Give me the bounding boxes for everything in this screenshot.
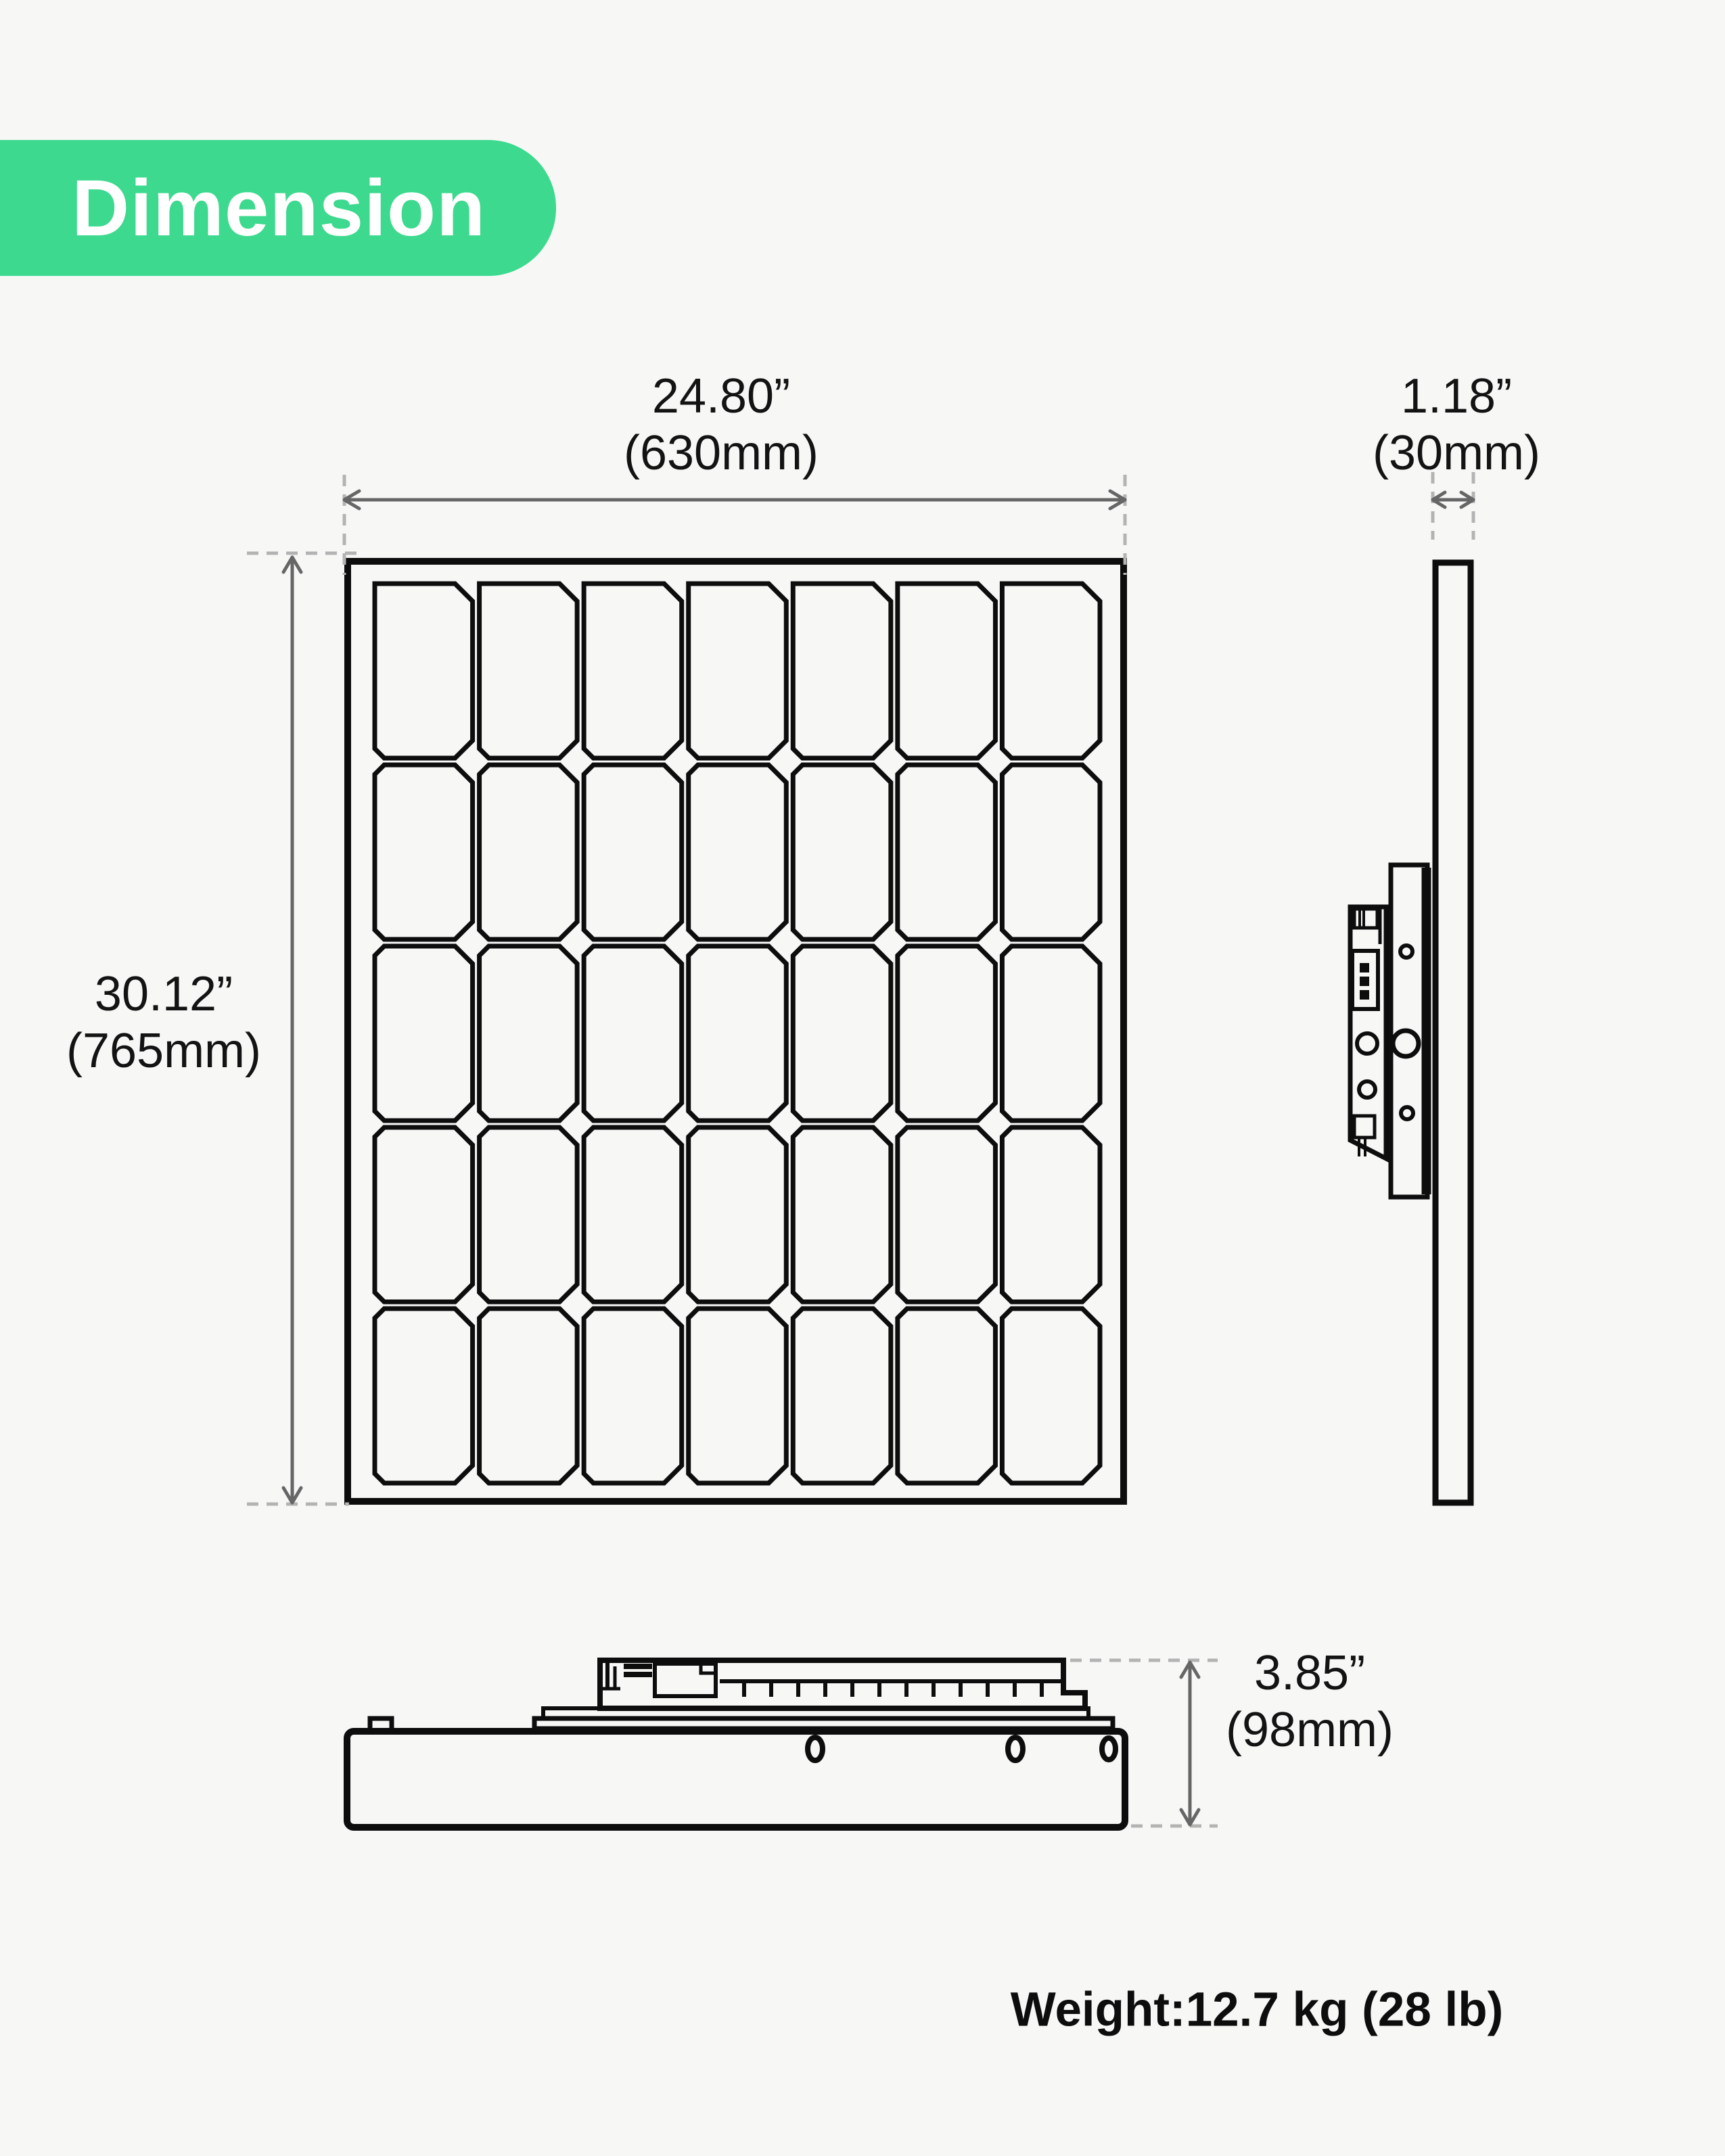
thickness-dimension-inches: 1.18” — [1401, 369, 1512, 424]
junction-box-profile — [600, 1660, 1085, 1708]
width-dimension-inches: 24.80” — [652, 369, 790, 424]
cable-gland-upper — [1357, 1033, 1377, 1054]
solar-cell — [1002, 765, 1100, 939]
width-dimension-metric: (630mm) — [624, 425, 819, 481]
height-dimension-metric: (765mm) — [66, 1023, 261, 1079]
dimension-arrows — [283, 491, 1473, 1825]
cable-gland-lower — [1359, 1081, 1375, 1098]
solar-cell — [1002, 584, 1100, 758]
solar-cell — [793, 584, 891, 758]
solar-cell — [898, 584, 996, 758]
solar-cell — [1002, 1127, 1100, 1302]
height-dimension-inches: 30.12” — [95, 966, 233, 1022]
solar-cell — [584, 765, 682, 939]
solar-cell — [375, 946, 473, 1121]
solar-cell — [584, 1309, 682, 1483]
solar-cell — [793, 1309, 891, 1483]
solar-cell — [480, 765, 578, 939]
solar-cell — [584, 1127, 682, 1302]
dimension-diagram: Dimension 24.80” (630mm) 1.18” (30mm) 30… — [0, 0, 1725, 2156]
mount-hole — [1008, 1737, 1023, 1760]
bracket-hole-center — [1393, 1031, 1419, 1056]
width-dimension-line — [344, 491, 1125, 509]
solar-cell — [375, 584, 473, 758]
solar-cell — [898, 946, 996, 1121]
solar-cells-grid — [375, 584, 1100, 1483]
solar-cell — [480, 1309, 578, 1483]
solar-cell — [689, 946, 787, 1121]
thickness-dimension-line — [1433, 492, 1473, 507]
mount-hole — [808, 1737, 823, 1760]
solar-cell — [480, 1127, 578, 1302]
solar-cell — [584, 946, 682, 1121]
heatsink-ribs — [744, 1681, 1042, 1697]
solar-cell — [689, 765, 787, 939]
solar-cell — [1002, 946, 1100, 1121]
solar-cell — [1002, 1309, 1100, 1483]
solar-cell — [375, 1127, 473, 1302]
solar-panel-side-view — [1350, 563, 1471, 1503]
depth-dimension-line — [1181, 1662, 1199, 1825]
height-dimension-line — [283, 557, 301, 1503]
bracket-hole-bottom — [1401, 1107, 1413, 1119]
weight-label: Weight:12.7 kg (28 lb) — [1011, 1983, 1504, 2038]
bracket-hole-top — [1400, 945, 1412, 958]
depth-dimension-inches: 3.85” — [1254, 1645, 1365, 1701]
junction-box — [1350, 907, 1386, 1158]
section-badge: Dimension — [0, 140, 556, 276]
edge-clip — [370, 1718, 392, 1731]
depth-dimension-metric: (98mm) — [1226, 1702, 1394, 1758]
solar-cell — [480, 946, 578, 1121]
solar-cell — [375, 1309, 473, 1483]
solar-cell — [689, 1309, 787, 1483]
extension-dashed-lines — [247, 472, 1473, 1826]
solar-cell — [898, 1309, 996, 1483]
solar-cell — [793, 1127, 891, 1302]
solar-cell — [375, 765, 473, 939]
solar-cell — [898, 1127, 996, 1302]
solar-cell — [898, 765, 996, 939]
solar-panel-front-view — [348, 561, 1124, 1501]
mounting-bracket — [1391, 865, 1430, 1197]
solar-cell — [689, 584, 787, 758]
panel-edge-profile — [1435, 563, 1471, 1503]
panel-frame — [348, 561, 1124, 1501]
solar-cell — [480, 584, 578, 758]
solar-panel-bottom-view — [347, 1660, 1125, 1827]
section-badge-label: Dimension — [72, 162, 486, 254]
solar-cell — [793, 946, 891, 1121]
solar-cell — [584, 584, 682, 758]
solar-cell — [689, 1127, 787, 1302]
thickness-dimension-metric: (30mm) — [1373, 425, 1540, 481]
solar-cell — [793, 765, 891, 939]
mount-hole — [1102, 1738, 1115, 1760]
